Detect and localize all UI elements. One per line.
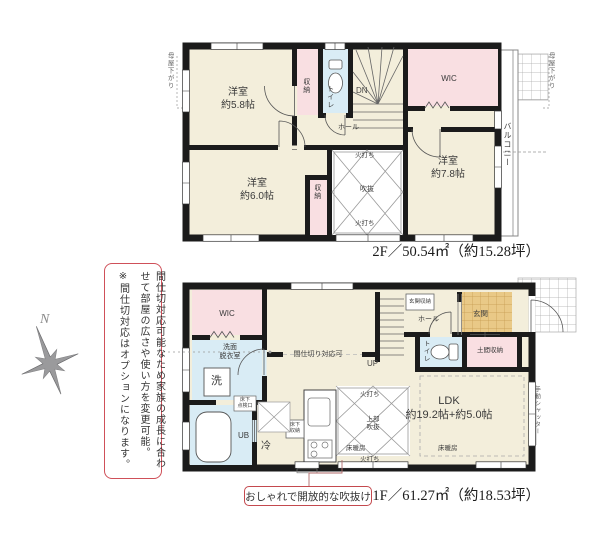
label-balcony: バルコニー (502, 122, 512, 167)
label-ldk: LDK 約19.2帖+約5.0帖 (378, 395, 520, 423)
floor2-plan (177, 43, 549, 241)
label-shutter: 手動シャッター (532, 386, 540, 435)
label-doma-storage: 土間収納 (477, 347, 503, 355)
label-hall-2f: ホール (338, 124, 359, 133)
label-closet-2f-b: 収納 (312, 184, 321, 200)
kitchen-island (304, 390, 336, 462)
note-line-1: 間仕切対応可能なため家族の成長に合わせて部屋の広さや使い方を変更可能。 (136, 271, 167, 471)
label-entrance: 玄関 (473, 309, 488, 318)
label-toilet-1f: トイレ (421, 340, 429, 363)
label-void-2f: 吹抜 (360, 186, 374, 195)
label-stairs-dn: DN (356, 86, 368, 96)
compass-icon (8, 316, 89, 404)
note-text: 間仕切対応可能なため家族の成長に合わせて部屋の広さや使い方を変更可能。 ※間仕切… (110, 271, 167, 471)
floor1-plan (183, 278, 577, 473)
label-hall-1f: ホール (418, 316, 439, 325)
label-toilet-2f: トイレ (325, 85, 334, 109)
label-moyasagari-left: 母屋下がり (165, 52, 173, 90)
label-floor-heating-left: 床暖房 (346, 445, 366, 453)
label-hiuchi-1f-bottom: 火打ち (360, 456, 380, 464)
label-washer: 洗 (211, 375, 222, 389)
label-partition-ready: 間仕切り対応可 (270, 351, 366, 360)
label-underfloor-hatch: 床下 点検口 (233, 397, 257, 410)
note-box: 間仕切対応可能なため家族の成長に合わせて部屋の広さや使い方を変更可能。 ※間仕切… (104, 263, 162, 479)
label-hiuchi-2f-top: 火打ち (355, 152, 375, 160)
label-bedroom-60: 洋室 約6.0帖 (214, 178, 300, 203)
label-washroom: 洗面 脱衣室 (200, 344, 260, 362)
label-wic-2f: WIC (410, 74, 488, 84)
label-bedroom-58: 洋室 約5.8帖 (198, 87, 278, 112)
label-stairs-up: UP (367, 359, 378, 369)
floorplan-geometry (0, 0, 600, 533)
label-moyasagari-right: 母屋下がり (546, 52, 554, 90)
sink-icon (308, 398, 330, 426)
label-closet-2f-a: 収納 (301, 78, 310, 94)
label-entrance-storage: 玄関収納 (406, 299, 434, 306)
floor2-area-label: 2F／50.54㎡（約15.28坪） (310, 243, 540, 261)
void-callout: おしゃれで開放的な吹抜け (244, 486, 372, 506)
label-floor-heating-right: 床暖房 (438, 445, 458, 453)
floorplan-page: 母屋下がり 母屋下がり 洋室 約5.8帖 収納 トイレ DN ホール WIC 洋… (0, 0, 600, 533)
note-line-2: ※間仕切対応はオプションになります。 (115, 271, 131, 471)
bathtub-icon (196, 412, 231, 462)
label-fridge: 冷 (261, 441, 271, 454)
label-bath-ub: UB (238, 431, 249, 441)
label-hiuchi-1f-top: 火打ち (360, 391, 380, 399)
toilet-icon-1f (431, 344, 458, 360)
label-bedroom-78: 洋室 約7.8帖 (408, 156, 488, 181)
label-hiuchi-2f-bottom: 火打ち (355, 220, 375, 228)
compass-north-label: N (40, 312, 49, 328)
label-wic-1f: WIC (193, 309, 261, 319)
label-underfloor-storage: 床下 収納 (285, 422, 305, 435)
